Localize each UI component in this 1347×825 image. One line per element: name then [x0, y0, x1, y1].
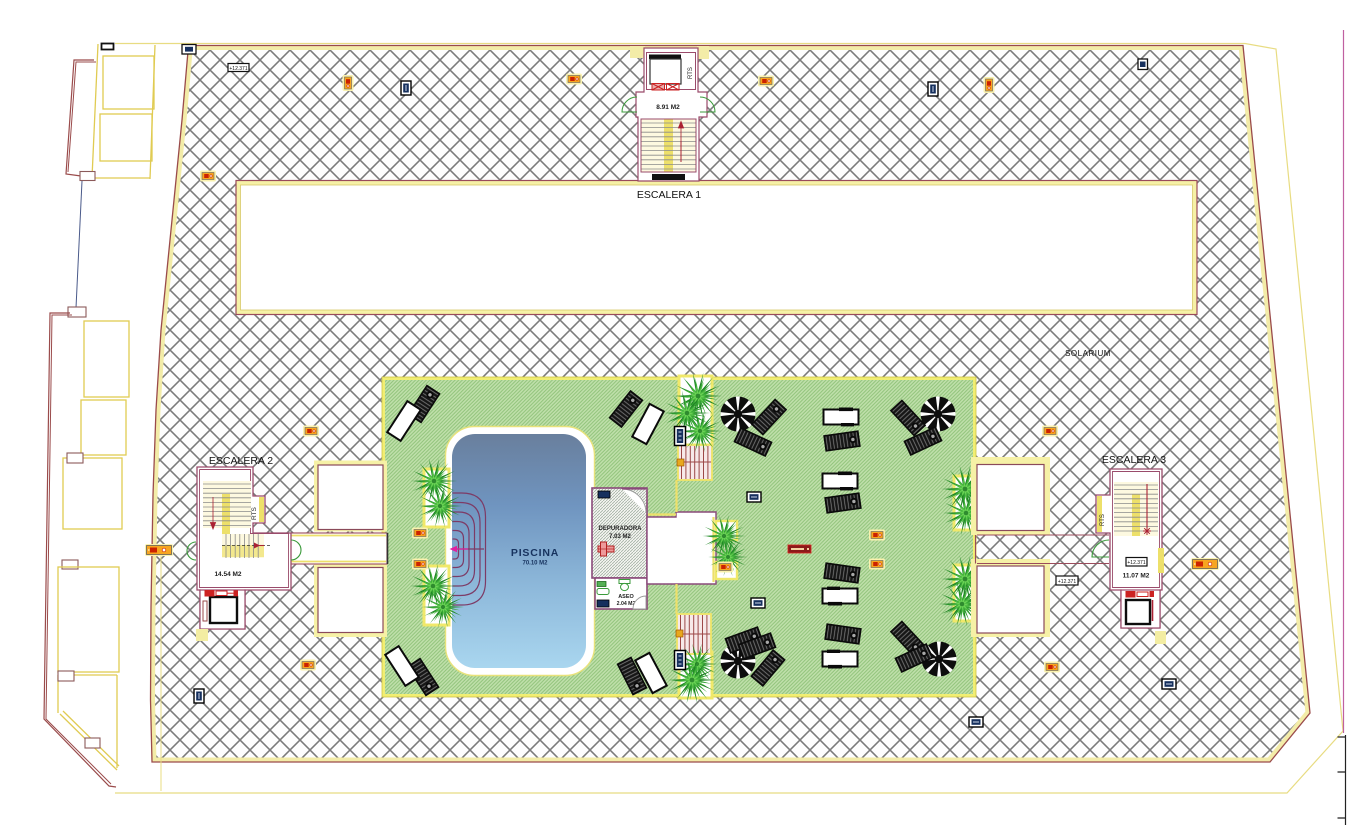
- svg-text:ESCALERA 2: ESCALERA 2: [209, 455, 273, 467]
- svg-text:RTS: RTS: [688, 67, 694, 79]
- svg-text:+12.371: +12.371: [229, 66, 247, 72]
- svg-text:ESCALERA 3: ESCALERA 3: [1102, 454, 1166, 466]
- svg-text:ESCALERA 1: ESCALERA 1: [637, 189, 701, 201]
- svg-text:14.54 M2: 14.54 M2: [214, 571, 241, 578]
- svg-text:11.07 M2: 11.07 M2: [1123, 573, 1150, 580]
- svg-text:70.10 M2: 70.10 M2: [522, 561, 548, 567]
- svg-text:+12.371: +12.371: [1058, 579, 1076, 585]
- svg-text:RTS: RTS: [251, 506, 258, 520]
- svg-text:DEPURADORA: DEPURADORA: [598, 526, 642, 532]
- svg-text:7.03 M2: 7.03 M2: [609, 534, 631, 540]
- svg-text:PISCINA: PISCINA: [511, 547, 559, 559]
- svg-text:SOLARIUM: SOLARIUM: [1065, 349, 1111, 358]
- svg-text:ASEO: ASEO: [618, 594, 634, 600]
- svg-text:8.91 M2: 8.91 M2: [656, 104, 680, 111]
- svg-text:+12.371: +12.371: [1127, 560, 1145, 566]
- svg-text:2.04 M2: 2.04 M2: [617, 601, 636, 607]
- svg-text:RTS: RTS: [1100, 514, 1106, 526]
